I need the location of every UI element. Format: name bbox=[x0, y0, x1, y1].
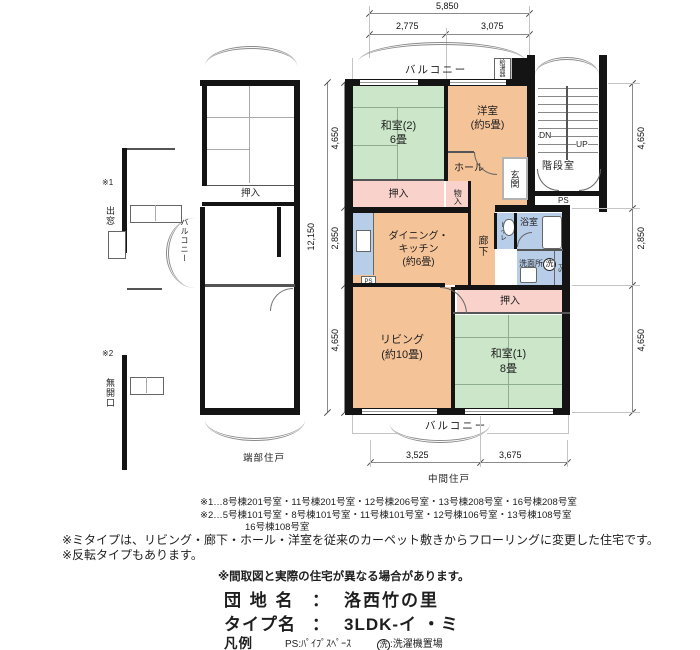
tatami-line bbox=[455, 384, 562, 385]
window-symbol bbox=[465, 409, 553, 414]
kitchen-sink bbox=[356, 230, 371, 252]
balcony-arc bbox=[205, 420, 305, 441]
wall-segment bbox=[494, 213, 497, 249]
wall-segment bbox=[453, 312, 570, 314]
left-plan-oshiire: 押入 bbox=[207, 185, 294, 203]
door-arc bbox=[270, 288, 293, 311]
room-washitsu2-label: 和室(2) 6畳 bbox=[381, 119, 416, 148]
witness-line bbox=[369, 6, 370, 58]
tatami-line bbox=[353, 107, 444, 108]
dim-bottom-seg1: 3,525 bbox=[405, 450, 430, 460]
dim-left-seg2: 2,850 bbox=[330, 226, 340, 251]
ps-stair-label: PS bbox=[558, 196, 569, 205]
dim-top-seg1: 2,775 bbox=[395, 21, 420, 31]
tatami-line bbox=[207, 149, 250, 150]
room-living: リビング (約10畳) bbox=[353, 287, 451, 408]
dimension-line bbox=[369, 13, 529, 14]
dimension-line bbox=[369, 34, 529, 35]
room-living-label: リビング (約10畳) bbox=[380, 333, 424, 362]
tatami-line bbox=[249, 86, 250, 183]
estate-separator: ： bbox=[312, 586, 329, 611]
dim-bottom-seg2: 3,675 bbox=[498, 450, 523, 460]
bay-window-shape bbox=[108, 231, 126, 259]
witness-line bbox=[480, 416, 481, 467]
water-heater-label: 給湯器 bbox=[497, 59, 506, 77]
balcony-bottom-label: バルコニー bbox=[425, 418, 487, 433]
wall-segment bbox=[444, 86, 448, 181]
wall-segment bbox=[294, 80, 300, 415]
wall-segment bbox=[495, 205, 570, 212]
window-symbol-line bbox=[146, 377, 147, 393]
witness-line bbox=[572, 285, 640, 286]
wall-segment bbox=[527, 55, 535, 79]
floor-plan-page: 5,850 2,775 3,075 押入 ※1 出窓 ※2 無開口 バルコニー … bbox=[0, 0, 700, 650]
wall-segment bbox=[562, 206, 570, 415]
dim-top-total: 5,850 bbox=[435, 1, 460, 11]
witness-line bbox=[529, 6, 530, 58]
dim-left-total: 12,150 bbox=[306, 222, 316, 252]
window-symbol bbox=[130, 377, 164, 395]
wall-segment bbox=[122, 355, 127, 470]
estate-name: 洛西竹の里 bbox=[344, 586, 439, 611]
tick bbox=[324, 409, 331, 416]
bathtub bbox=[542, 216, 562, 249]
stair-divider bbox=[566, 86, 568, 160]
window-symbol bbox=[362, 409, 437, 414]
disclaimer: ※間取図と実際の住宅が異なる場合があります。 bbox=[218, 568, 470, 584]
wall-segment bbox=[127, 148, 175, 150]
wall-segment bbox=[533, 191, 607, 196]
dim-right-seg2: 2,850 bbox=[636, 226, 646, 251]
wall-segment bbox=[200, 80, 300, 86]
tatami-line bbox=[455, 337, 562, 338]
window-symbol-line bbox=[155, 205, 156, 221]
witness-line bbox=[608, 83, 640, 84]
witness-line bbox=[572, 208, 640, 209]
left-plan-balcony-label: バルコニー bbox=[179, 218, 190, 263]
balcony-top-label: バルコニー bbox=[405, 62, 467, 77]
left-plan-mark2: ※2 bbox=[102, 349, 113, 358]
witness-line bbox=[572, 412, 640, 413]
balcony-side-line bbox=[352, 415, 353, 434]
wall-segment bbox=[517, 249, 563, 251]
legend-laundry-text: :洗濯機置場 bbox=[390, 635, 443, 650]
legend-label: 凡例 bbox=[224, 632, 253, 650]
stair-arc bbox=[535, 57, 599, 75]
wall-segment bbox=[345, 283, 445, 287]
window-symbol bbox=[450, 80, 506, 85]
window-symbol bbox=[360, 80, 418, 85]
legend-ps: PS:ﾊﾟｲﾌﾟｽﾍﾟｰｽ bbox=[285, 635, 351, 650]
room-oshiire-top: 押入 bbox=[353, 181, 444, 207]
note-reverse: ※反転タイプもあります。 bbox=[62, 546, 203, 563]
room-washitsu2: 和室(2) 6畳 bbox=[353, 86, 444, 180]
left-plan-bay-window-label: 出窓 bbox=[104, 206, 117, 226]
type-separator: ： bbox=[312, 610, 329, 635]
wall-segment bbox=[512, 58, 528, 80]
wall-segment bbox=[200, 207, 205, 415]
dimension-line bbox=[327, 82, 328, 412]
left-plan-no-opening-label: 無開口 bbox=[104, 378, 117, 408]
room-oshiire-bottom: 押入 bbox=[457, 290, 563, 312]
wall-segment bbox=[200, 408, 300, 415]
type-name: 3LDK-イ ・ミ bbox=[344, 610, 459, 635]
legend-laundry-symbol: 洗 bbox=[377, 634, 390, 650]
room-monoire-label: 物入 bbox=[452, 189, 462, 205]
wall-segment bbox=[599, 55, 607, 212]
dim-right-seg3: 4,650 bbox=[636, 328, 646, 353]
left-plan-caption: 端部住戸 bbox=[243, 450, 285, 464]
balcony-side-line bbox=[352, 58, 353, 80]
wall-segment bbox=[455, 285, 570, 290]
legend-laundry-symbol-char: 洗 bbox=[377, 639, 390, 650]
room-genkan: 玄関 bbox=[502, 157, 528, 200]
wall-segment bbox=[345, 79, 353, 415]
room-oshiire-top-label: 押入 bbox=[389, 188, 409, 201]
washbasin bbox=[520, 267, 537, 283]
wall-segment bbox=[127, 288, 162, 290]
wall-segment bbox=[202, 86, 207, 186]
main-plan-caption: 中間住戸 bbox=[428, 471, 470, 485]
stair-steps bbox=[538, 88, 598, 154]
wall-segment bbox=[352, 207, 470, 213]
wall-segment bbox=[277, 207, 281, 257]
balcony-side-line bbox=[568, 415, 569, 434]
door-arc bbox=[537, 169, 559, 191]
room-dk-label: ダイニング・ キッチン (約6畳) bbox=[389, 230, 449, 269]
estate-label: 団 地 名 bbox=[224, 586, 294, 611]
dim-top-seg2: 3,075 bbox=[480, 21, 505, 31]
room-oshiire-bottom-label: 押入 bbox=[500, 295, 520, 308]
stair-up-label: UP bbox=[576, 139, 588, 149]
witness-line bbox=[567, 440, 568, 467]
balcony-edge-line bbox=[352, 433, 397, 434]
left-plan-mark1: ※1 bbox=[102, 178, 113, 187]
tatami-line bbox=[207, 117, 294, 118]
room-rouka-label: 廊下 bbox=[475, 235, 488, 257]
room-yokushitsu-label: 浴室 bbox=[520, 217, 538, 229]
room-yoshitsu: 洋室 (約5畳) bbox=[448, 86, 527, 152]
dim-left-seg3: 4,650 bbox=[330, 328, 340, 353]
dim-left-seg1: 4,650 bbox=[330, 126, 340, 151]
room-genkan-label: 玄関 bbox=[509, 170, 522, 188]
balcony-edge-line bbox=[487, 433, 569, 434]
room-rouka: 廊下 bbox=[468, 205, 495, 287]
witness-line bbox=[370, 440, 371, 467]
wall-segment bbox=[448, 151, 474, 153]
room-washitsu1-label: 和室(1) 8畳 bbox=[491, 347, 526, 376]
balcony-arc bbox=[205, 46, 297, 66]
dim-right-seg1: 4,650 bbox=[636, 126, 646, 151]
stair-dn-label: DN bbox=[539, 130, 551, 140]
door-arc bbox=[579, 169, 601, 191]
room-yoshitsu-label: 洋室 (約5畳) bbox=[471, 105, 505, 132]
dimension-line bbox=[370, 462, 567, 463]
wall-segment bbox=[202, 202, 300, 206]
left-plan-oshiire-label: 押入 bbox=[241, 188, 260, 200]
wall-segment bbox=[353, 179, 444, 181]
window-symbol bbox=[130, 205, 182, 223]
note-ref1: ※1…8号棟201号室・11号棟201号室・12号棟206号室・13号棟208号… bbox=[200, 494, 577, 508]
wall-segment bbox=[205, 284, 295, 287]
wall-segment bbox=[468, 181, 471, 287]
dimension-line bbox=[632, 83, 633, 412]
